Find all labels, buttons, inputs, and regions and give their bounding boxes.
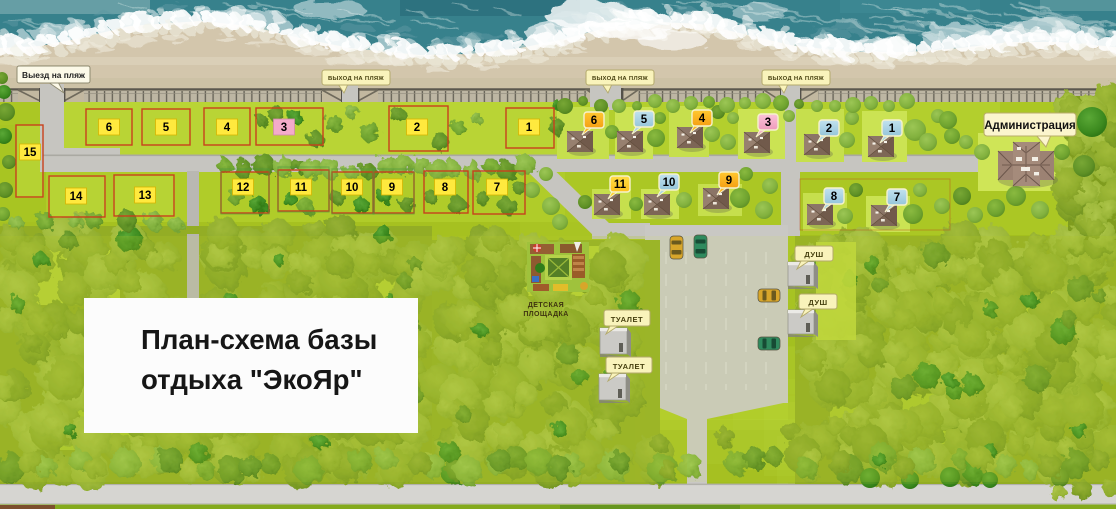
svg-text:7: 7 — [894, 192, 900, 204]
svg-text:ДУШ: ДУШ — [804, 250, 823, 259]
svg-text:3: 3 — [765, 117, 771, 129]
svg-text:1: 1 — [889, 123, 896, 135]
svg-text:11: 11 — [614, 179, 627, 191]
svg-text:1: 1 — [526, 122, 533, 134]
svg-text:ДУШ: ДУШ — [808, 298, 827, 307]
svg-text:План-схема базы: План-схема базы — [141, 324, 377, 355]
svg-text:3: 3 — [281, 122, 287, 134]
svg-text:2: 2 — [414, 122, 420, 134]
svg-text:Администрация: Администрация — [984, 120, 1076, 132]
svg-text:15: 15 — [24, 147, 37, 159]
svg-text:4: 4 — [699, 113, 706, 125]
svg-text:ВЫХОД НА ПЛЯЖ: ВЫХОД НА ПЛЯЖ — [768, 76, 824, 82]
svg-text:Выезд на пляж: Выезд на пляж — [22, 70, 85, 80]
svg-text:ВЫХОД НА ПЛЯЖ: ВЫХОД НА ПЛЯЖ — [592, 76, 648, 82]
svg-text:9: 9 — [389, 182, 395, 194]
svg-text:2: 2 — [826, 123, 832, 135]
svg-text:10: 10 — [346, 182, 359, 194]
svg-text:4: 4 — [224, 122, 231, 134]
svg-text:11: 11 — [295, 182, 308, 194]
svg-text:13: 13 — [139, 190, 152, 202]
svg-text:ТУАЛЕТ: ТУАЛЕТ — [613, 362, 645, 371]
svg-text:ТУАЛЕТ: ТУАЛЕТ — [611, 315, 643, 324]
svg-text:5: 5 — [641, 114, 648, 126]
svg-text:14: 14 — [70, 191, 83, 203]
svg-text:6: 6 — [591, 115, 597, 127]
svg-text:ПЛОЩАДКА: ПЛОЩАДКА — [523, 311, 568, 318]
svg-text:6: 6 — [106, 122, 112, 134]
svg-text:8: 8 — [442, 182, 449, 194]
svg-text:7: 7 — [494, 182, 500, 194]
svg-text:9: 9 — [726, 175, 732, 187]
svg-text:ДЕТСКАЯ: ДЕТСКАЯ — [528, 302, 564, 309]
svg-text:12: 12 — [237, 182, 250, 194]
svg-text:8: 8 — [831, 191, 838, 203]
svg-text:отдыха "ЭкоЯр": отдыха "ЭкоЯр" — [141, 364, 363, 395]
svg-text:10: 10 — [663, 177, 676, 189]
svg-text:5: 5 — [163, 122, 170, 134]
svg-text:ВЫХОД НА ПЛЯЖ: ВЫХОД НА ПЛЯЖ — [328, 76, 384, 82]
